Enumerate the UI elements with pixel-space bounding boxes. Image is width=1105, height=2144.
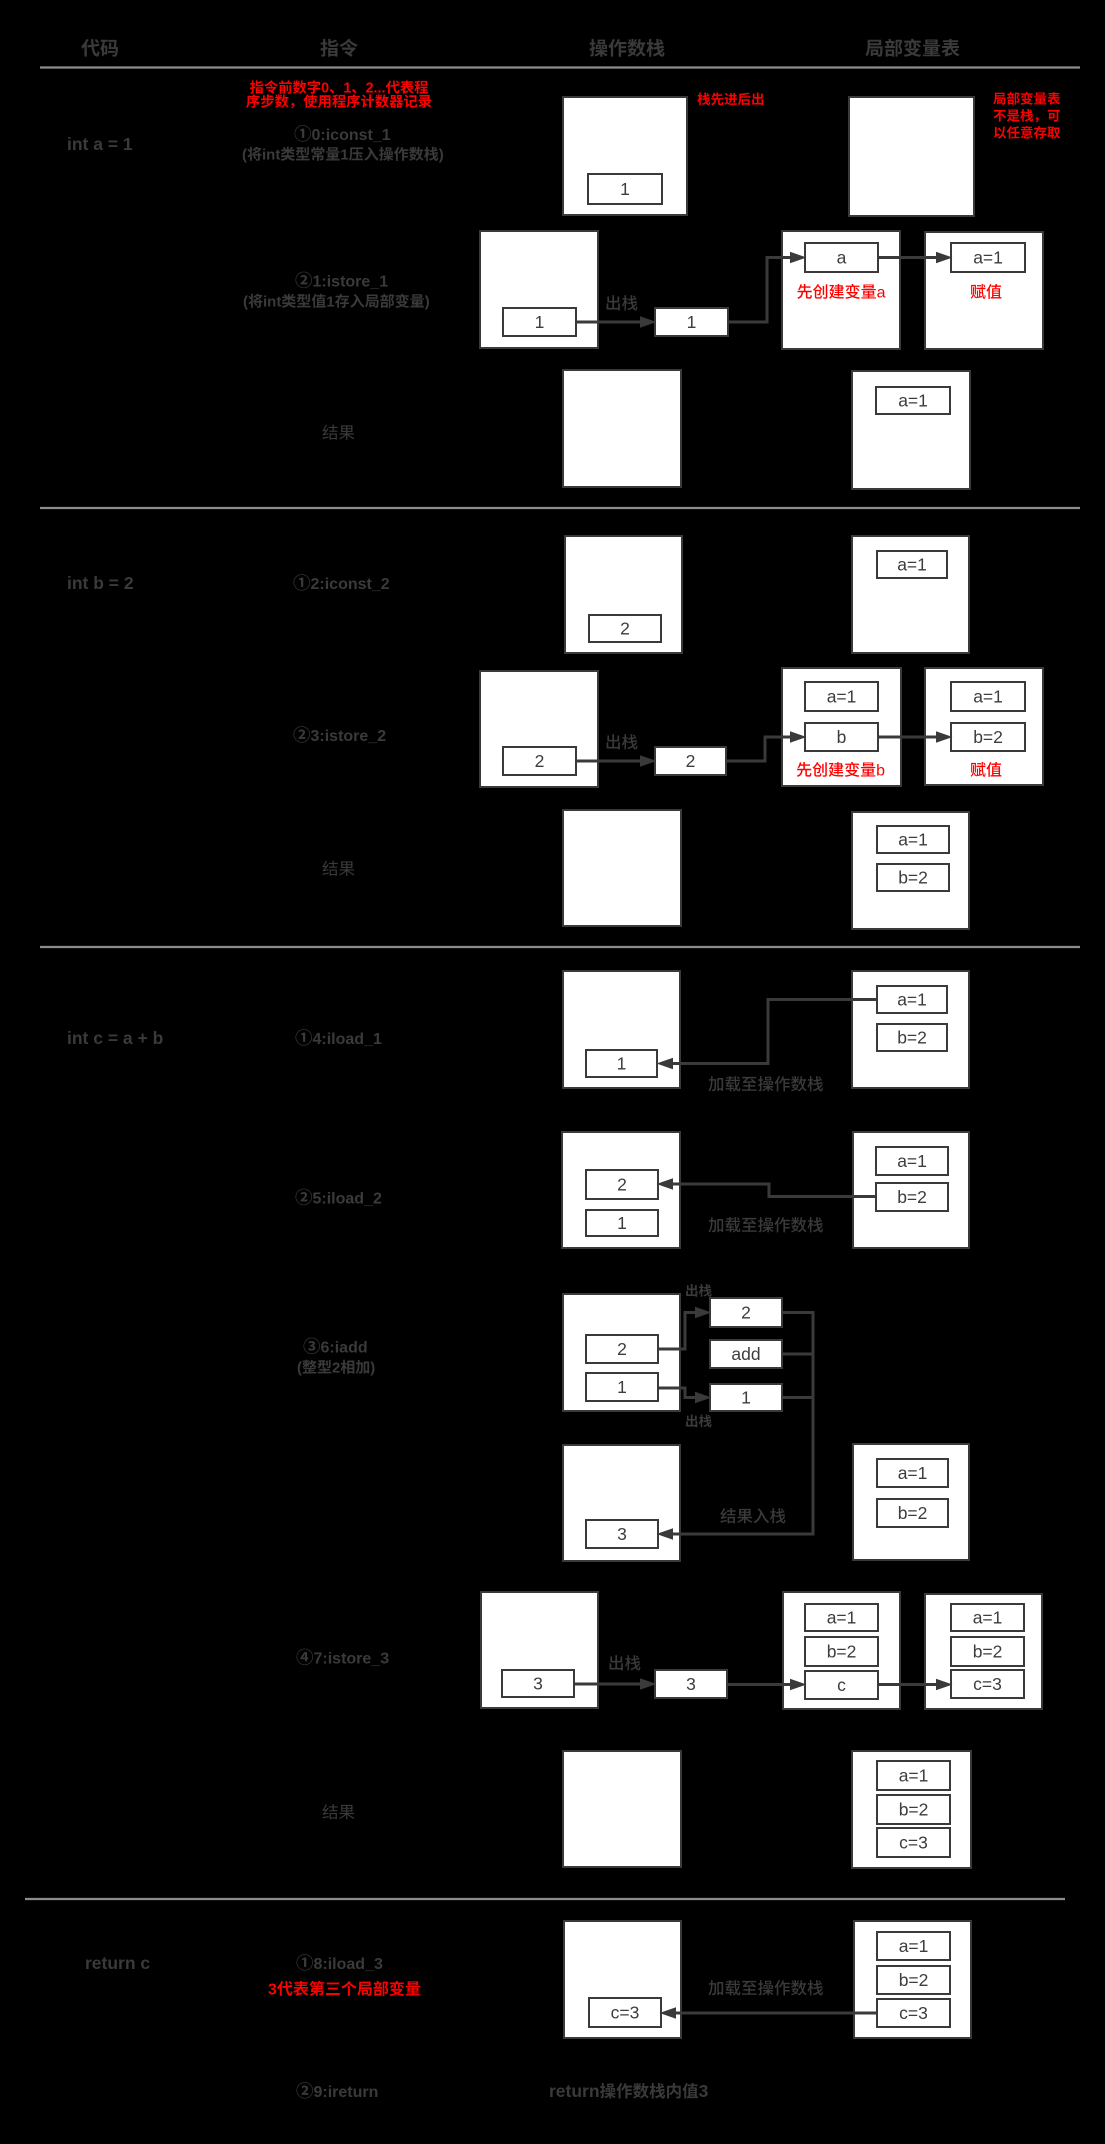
svg-text:c=3: c=3 [973,1674,1002,1694]
svg-text:2: 2 [617,1175,627,1195]
svg-text:3: 3 [533,1674,543,1694]
svg-text:a=1: a=1 [899,1936,929,1956]
svg-text:1: 1 [617,1377,627,1397]
svg-text:4:iload_1: 4:iload_1 [313,1031,382,1048]
svg-text:a=1: a=1 [973,687,1003,707]
svg-text:c=3: c=3 [899,1833,928,1853]
svg-text:8:iload_3: 8:iload_3 [314,1956,383,1973]
svg-text:c: c [837,1675,846,1695]
svg-text:c=3: c=3 [611,2003,640,2023]
svg-text:1: 1 [620,179,630,199]
svg-text:int b = 2: int b = 2 [67,573,134,593]
svg-text:2: 2 [535,751,545,771]
svg-text:b: b [876,763,885,780]
svg-text:3:istore_2: 3:istore_2 [311,728,387,745]
svg-text:2: 2 [332,1360,340,1377]
svg-text:3: 3 [617,1524,627,1544]
svg-text:): ) [370,1360,375,1377]
svg-text:1: 1 [617,1054,627,1074]
svg-text:1: 1 [340,147,348,164]
svg-text:1:istore_1: 1:istore_1 [313,274,389,291]
svg-text:2: 2 [617,1339,627,1359]
svg-text:a: a [837,248,847,268]
svg-text:int: int [262,147,280,164]
svg-text:int a = 1: int a = 1 [67,134,133,154]
svg-text:a=1: a=1 [898,391,928,411]
svg-text:a=1: a=1 [898,830,928,850]
svg-text:0: 0 [321,81,329,97]
svg-text:1: 1 [343,81,351,97]
svg-text:int c = a + b: int c = a + b [67,1028,163,1048]
svg-text:b: b [837,727,847,747]
svg-text:return: return [549,2081,600,2101]
svg-text:2:iconst_2: 2:iconst_2 [311,576,390,593]
svg-text:a: a [877,285,886,302]
svg-text:(: ( [297,1360,302,1377]
svg-text:6:iadd: 6:iadd [321,1340,368,1357]
svg-text:a=1: a=1 [899,1766,929,1786]
svg-text:a=1: a=1 [897,1151,927,1171]
svg-text:b=2: b=2 [898,868,928,888]
svg-text:b=2: b=2 [899,1800,929,1820]
svg-text:2: 2 [686,751,696,771]
svg-text:int: int [263,294,281,311]
svg-text:a=1: a=1 [898,1463,928,1483]
svg-text:3: 3 [268,1982,277,1999]
svg-text:b=2: b=2 [897,1187,927,1207]
svg-text:1: 1 [687,312,697,332]
svg-text:2: 2 [741,1303,751,1323]
svg-text:b=2: b=2 [897,1028,927,1048]
svg-text:a=1: a=1 [897,990,927,1010]
svg-text:1: 1 [326,294,334,311]
svg-text:): ) [425,294,430,311]
svg-text:1: 1 [535,312,545,332]
svg-text:0:iconst_1: 0:iconst_1 [312,127,391,144]
svg-text:a=1: a=1 [973,1608,1003,1628]
svg-text:3: 3 [686,1674,696,1694]
svg-text:9:ireturn: 9:ireturn [314,2084,379,2101]
svg-text:1: 1 [617,1213,627,1233]
svg-text:c=3: c=3 [899,2003,928,2023]
svg-text:2...: 2... [366,81,386,97]
svg-text:): ) [439,147,444,164]
svg-text:a=1: a=1 [973,248,1003,268]
svg-text:5:iload_2: 5:iload_2 [313,1191,382,1208]
svg-text:a=1: a=1 [897,555,927,575]
svg-text:(: ( [242,147,247,164]
svg-text:(: ( [243,294,248,311]
svg-text:1: 1 [741,1388,751,1408]
svg-text:add: add [731,1344,760,1364]
svg-text:2: 2 [620,619,630,639]
svg-text:b=2: b=2 [973,1642,1003,1662]
svg-text:return c: return c [85,1953,150,1973]
svg-text:7:istore_3: 7:istore_3 [314,1651,390,1668]
svg-text:b=2: b=2 [899,1970,929,1990]
svg-text:b=2: b=2 [973,727,1003,747]
svg-text:b=2: b=2 [898,1503,928,1523]
svg-text:b=2: b=2 [827,1642,857,1662]
svg-text:a=1: a=1 [827,1608,857,1628]
svg-text:a=1: a=1 [827,687,857,707]
svg-text:3: 3 [699,2081,709,2101]
